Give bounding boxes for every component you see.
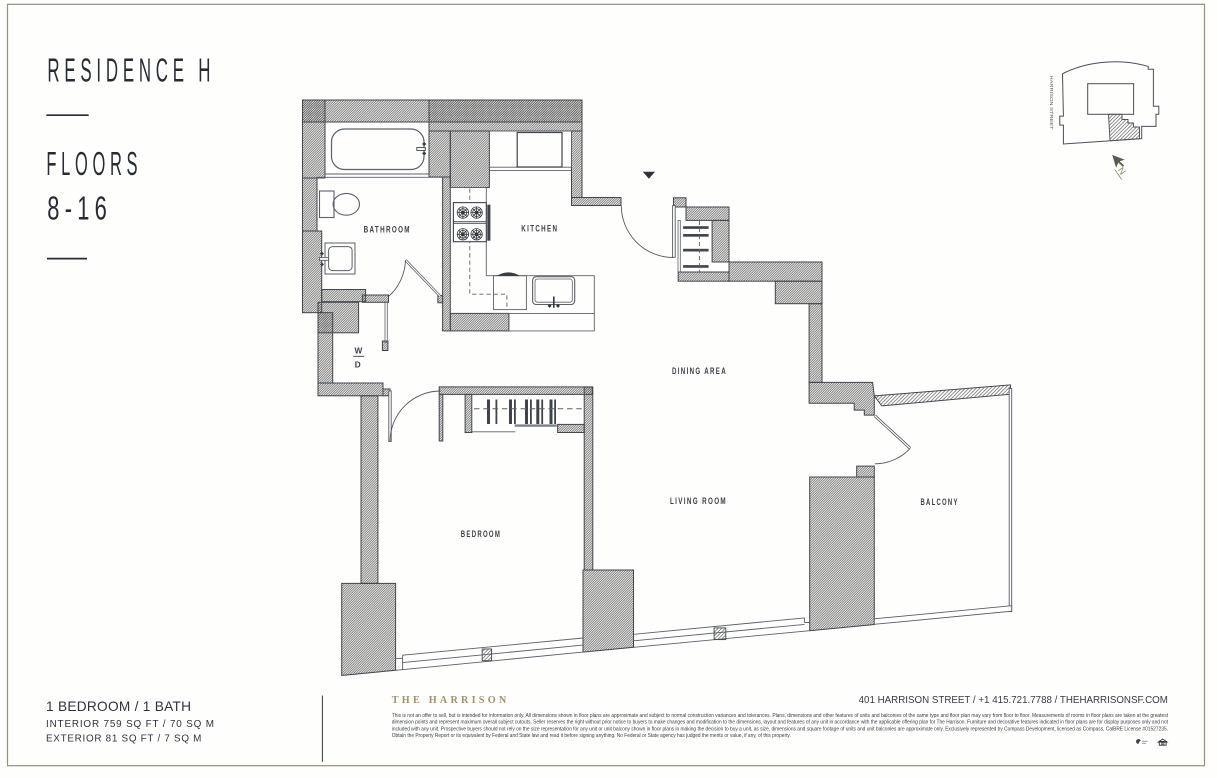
svg-text:HARRISON STREET: HARRISON STREET <box>1049 76 1054 130</box>
svg-text:EXTERIOR 81 SQ FT / 7 SQ M: EXTERIOR 81 SQ FT / 7 SQ M <box>46 733 201 744</box>
svg-text:LIVING ROOM: LIVING ROOM <box>670 496 727 506</box>
svg-text:KITCHEN: KITCHEN <box>521 223 558 233</box>
svg-text:401 HARRISON STREET / +1 415: 401 HARRISON STREET / +1 415.721.7788 / … <box>859 695 1168 706</box>
svg-text:included with any unit. Prospe: included with any unit. Prospective buye… <box>392 726 1168 732</box>
svg-text:RESIDENCE H: RESIDENCE H <box>47 52 215 89</box>
svg-text:DINING AREA: DINING AREA <box>672 366 727 376</box>
svg-text:BALCONY: BALCONY <box>921 497 959 507</box>
svg-text:BEDROOM: BEDROOM <box>461 529 501 539</box>
svg-text:This is not an offer to sell,: This is not an offer to sell, but is int… <box>392 713 1169 719</box>
svg-text:BATHROOM: BATHROOM <box>364 224 411 234</box>
svg-text:D: D <box>355 361 363 370</box>
svg-text:dimension points and represent: dimension points and represent maximum o… <box>392 720 1169 726</box>
svg-text:FLOORS: FLOORS <box>46 146 142 183</box>
svg-text:W: W <box>355 346 365 355</box>
svg-text:1 BEDROOM / 1 BATH: 1 BEDROOM / 1 BATH <box>46 699 191 714</box>
svg-text:Obtain the Property Report or: Obtain the Property Report or its equiva… <box>392 733 791 739</box>
svg-text:INTERIOR 759 SQ FT / 70 SQ M: INTERIOR 759 SQ FT / 70 SQ M <box>46 719 214 730</box>
svg-text:8-16: 8-16 <box>47 191 112 228</box>
